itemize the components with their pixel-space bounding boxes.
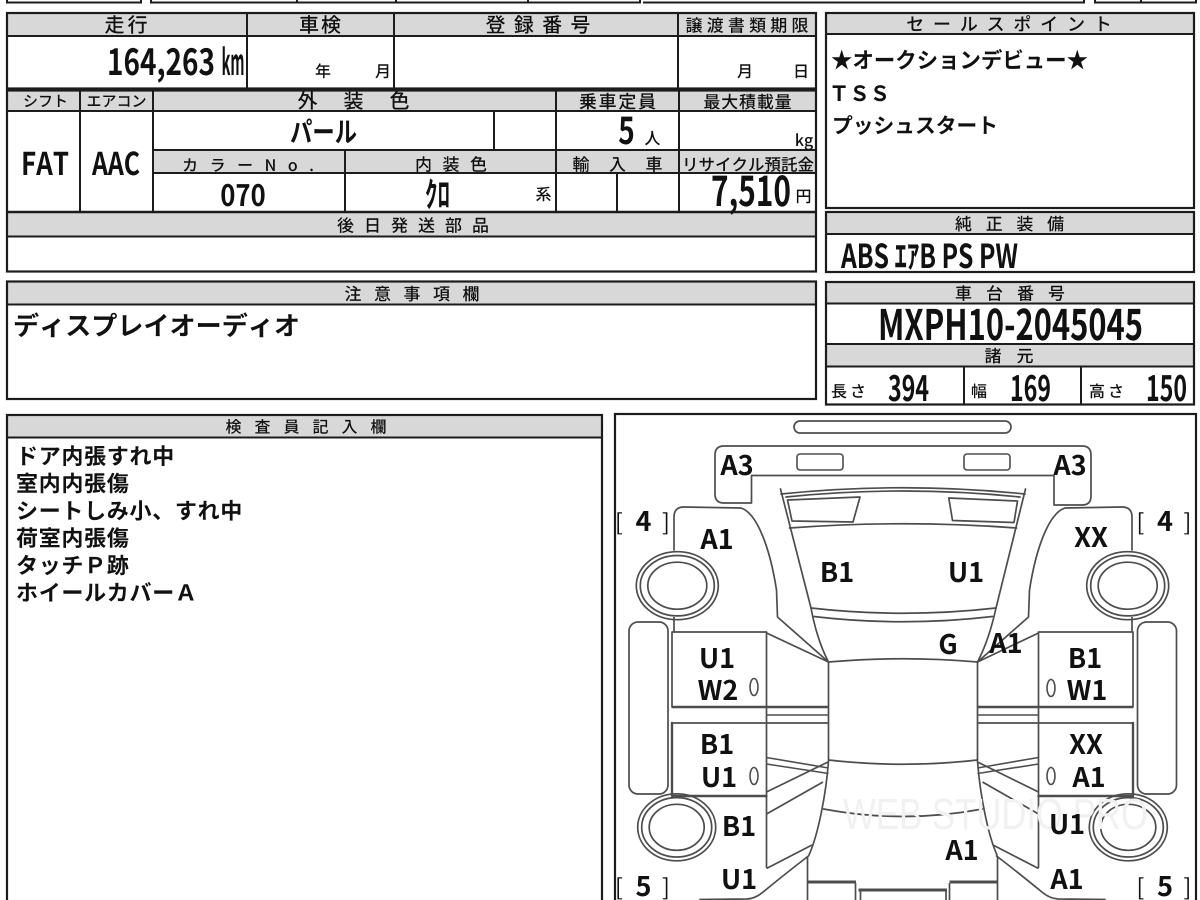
svg-text:WEB STUDIO PRO: WEB STUDIO PRO <box>843 790 1148 839</box>
